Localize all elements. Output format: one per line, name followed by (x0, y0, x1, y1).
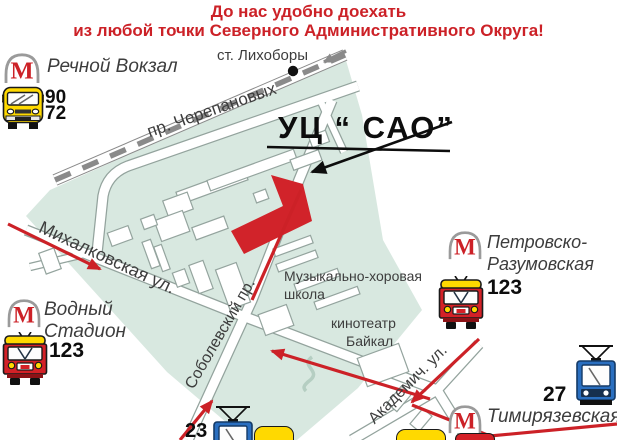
minibus-icon (2, 86, 44, 130)
metro-icon: М (447, 404, 483, 434)
cinema-label-line2: Байкал (346, 334, 393, 349)
svg-text:М: М (454, 409, 476, 434)
cinema-label-line1: кинотеатр (331, 316, 396, 331)
station-dot (288, 66, 298, 76)
route-number-27: 27 (543, 383, 566, 407)
transit-map: До нас удобно доехать из любой точки Сев… (0, 0, 617, 440)
trolleybus-icon (438, 276, 484, 330)
trolleybus-roof-icon (455, 433, 495, 440)
route-number-123-vodny: 123 (49, 339, 84, 363)
metro-icon: М (3, 52, 41, 84)
svg-text:М: М (13, 303, 35, 328)
page-title: УЦ “ САО” (278, 110, 454, 146)
route-number-123-petrovsko: 123 (487, 276, 522, 300)
school-label-line1: Музыкально-хоровая (284, 269, 422, 284)
tram-icon (211, 405, 255, 440)
metro-icon: М (6, 298, 42, 328)
bus-roof-icon (396, 429, 446, 440)
station-label-petrovsko-line2: Разумовская (487, 255, 594, 274)
school-label-line2: школа (284, 287, 325, 302)
station-label-vodny-line1: Водный (44, 300, 113, 320)
station-label-petrovsko-line1: Петровско- (487, 233, 587, 252)
trolleybus-icon (2, 332, 48, 386)
route-number-72: 72 (45, 103, 66, 125)
station-label-rechnoy: Речной Вокзал (47, 57, 178, 77)
svg-text:М: М (454, 235, 476, 260)
station-label-timiryazevskaya: Тимирязевская (487, 407, 617, 427)
rail-station-label: ст. Лихоборы (217, 48, 308, 64)
bus-roof-icon (254, 426, 294, 440)
header-line-2: из любой точки Северного Административно… (0, 21, 617, 40)
svg-text:М: М (10, 57, 33, 84)
route-number-23: 23 (185, 420, 207, 440)
header-line-1: До нас удобно доехать (0, 2, 617, 21)
metro-icon: М (447, 230, 483, 260)
tram-icon (574, 344, 617, 406)
